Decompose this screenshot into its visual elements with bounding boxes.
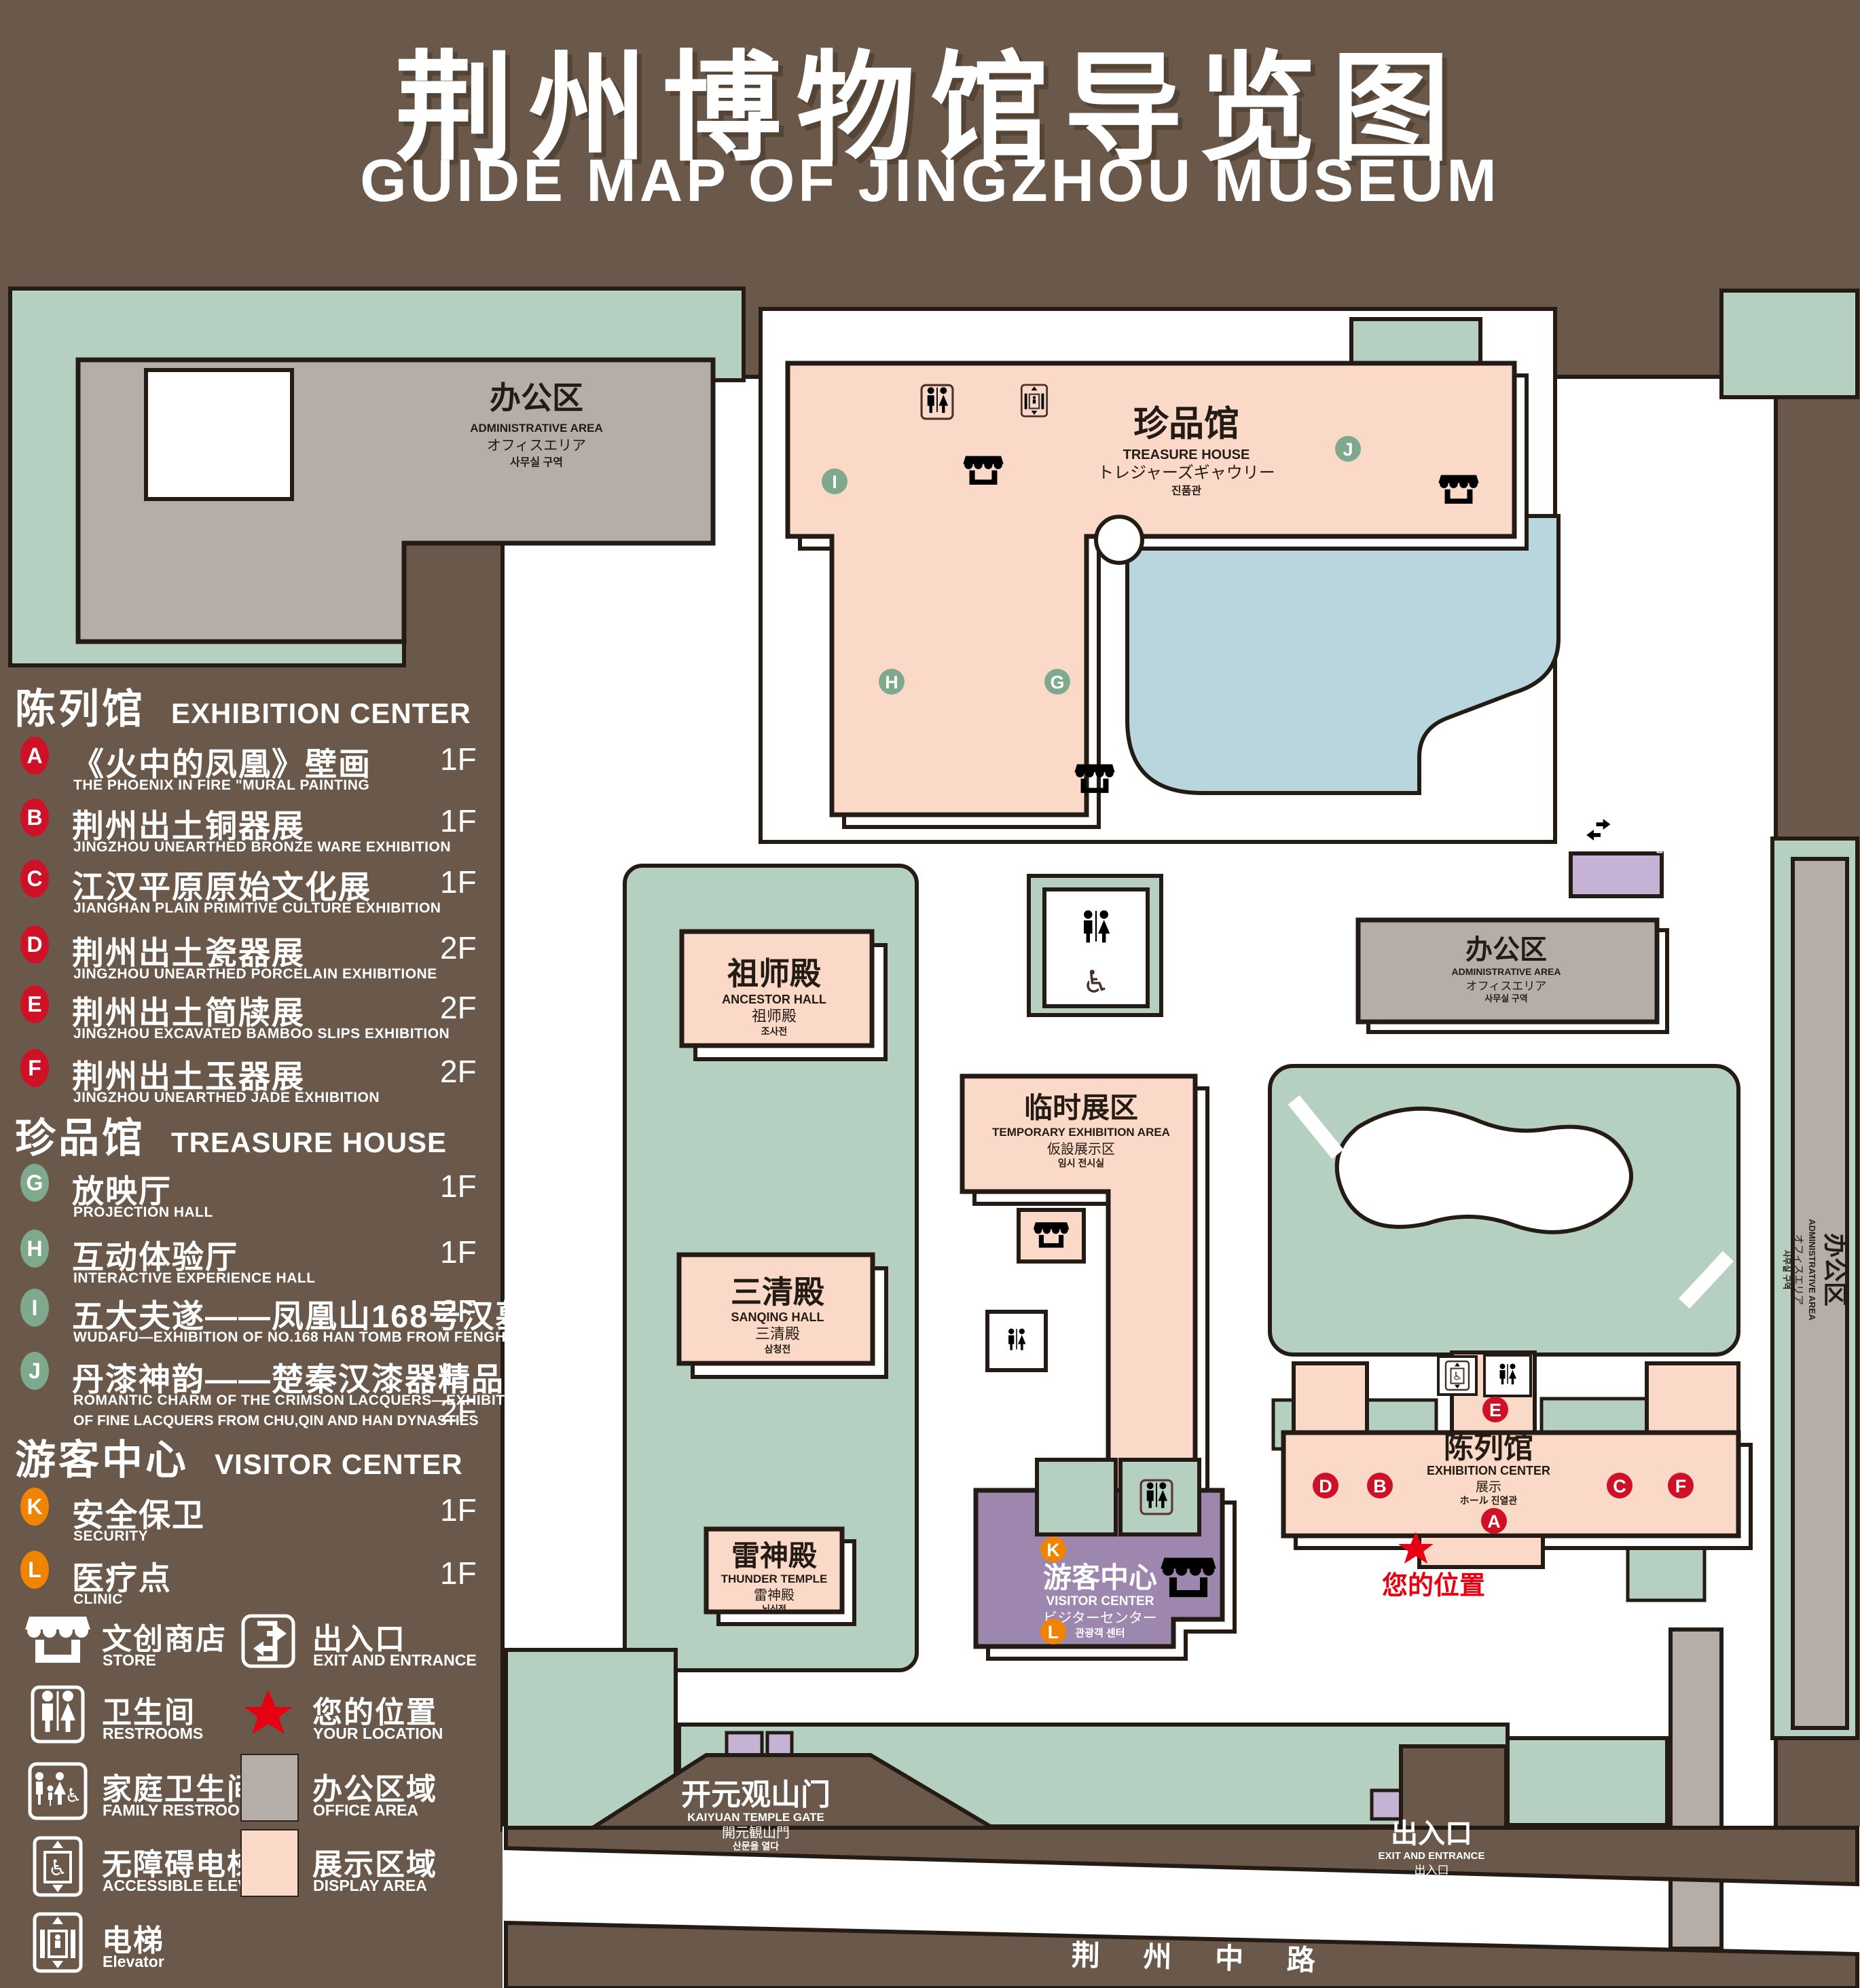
floor-label: 2F — [440, 1293, 477, 1329]
map-marker-G: G — [1044, 669, 1070, 695]
svg-text:祖师殿: 祖师殿 — [727, 956, 821, 991]
south-exit-area — [1401, 1746, 1506, 1830]
badge-G: G — [20, 1164, 49, 1202]
svg-text:出入口: 出入口 — [1649, 830, 1686, 843]
list-item-J: J丹漆神韵——楚秦汉漆器精品展ROMANTIC CHARM OF THE CRI… — [0, 1352, 503, 1414]
badge-K: K — [20, 1488, 49, 1526]
svg-text:珍品馆: 珍品馆 — [1133, 405, 1239, 444]
floor-label: 2F — [440, 1053, 477, 1090]
svg-text:办公区: 办公区 — [490, 380, 583, 416]
floor-label: 1F — [440, 1555, 477, 1591]
svg-text:K: K — [1046, 1540, 1060, 1560]
svg-text:雷神殿: 雷神殿 — [731, 1540, 817, 1572]
svg-text:办公区: 办公区 — [1465, 935, 1547, 965]
elevator-icon — [20, 1905, 95, 1980]
svg-text:ADMINISTRATIVE AREA: ADMINISTRATIVE AREA — [1807, 1219, 1817, 1321]
list-item-C: C江汉平原原始文化展JIANGHAN PLAIN PRIMITIVE CULTU… — [0, 860, 503, 922]
svg-text:E: E — [1489, 1400, 1501, 1420]
map-marker-E: E — [1482, 1397, 1508, 1422]
svg-text:EXIT AND ENTRANCE: EXIT AND ENTRANCE — [1379, 1850, 1485, 1862]
map-marker-K: K — [1040, 1536, 1066, 1562]
section-visitor-center: 游客中心VISITOR CENTER — [15, 1427, 463, 1475]
badge-E: E — [20, 985, 49, 1023]
svg-text:ANCESTOR HALL: ANCESTOR HALL — [722, 993, 826, 1006]
store-icon — [20, 1604, 95, 1678]
svg-text:관광객 센터: 관광객 센터 — [1075, 1627, 1125, 1639]
svg-text:출입구: 출입구 — [1656, 844, 1680, 854]
svg-text:산문을 열다: 산문을 열다 — [733, 1841, 779, 1852]
svg-text:B: B — [1373, 1476, 1387, 1496]
visitor-green-notch-1 — [1037, 1460, 1116, 1534]
svg-text:조사전: 조사전 — [761, 1026, 788, 1037]
map-marker-D: D — [1313, 1473, 1338, 1498]
svg-text:トレジャーズギャウリー: トレジャーズギャウリー — [1097, 464, 1275, 482]
badge-F: F — [20, 1049, 49, 1087]
svg-text:G: G — [1050, 672, 1064, 693]
svg-text:临时展区: 临时展区 — [1024, 1092, 1138, 1124]
badge-J: J — [20, 1352, 49, 1390]
svg-text:삼청전: 삼청전 — [765, 1344, 791, 1355]
floor-label: 1F — [440, 1492, 477, 1528]
page-subtitle: GUIDE MAP OF JINGZHOU MUSEUM — [0, 146, 1860, 215]
exhibition-stub — [1419, 1536, 1543, 1567]
list-item-I: I五大夫遂——凤凰山168号汉墓展WUDAFU—EXHIBITION OF NO… — [0, 1289, 503, 1351]
svg-text:办公区: 办公区 — [1821, 1233, 1849, 1306]
floor-label: 2F — [440, 929, 477, 966]
floor-label: 1F — [440, 741, 477, 777]
list-item-B: B荆州出土铜器展JINGZHOU UNEARTHED BRONZE WARE E… — [0, 798, 503, 861]
map-marker-L: L — [1040, 1619, 1066, 1644]
svg-text:祖师殿: 祖师殿 — [752, 1008, 797, 1025]
your-location-label: 您的位置 — [1382, 1572, 1485, 1600]
svg-text:游客中心: 游客中心 — [1043, 1562, 1157, 1594]
list-item-H: H互动体验厅INTERACTIVE EXPERIENCE HALL1F — [0, 1230, 503, 1292]
green-area-southeast — [1508, 1738, 1667, 1825]
svg-text:SANQING HALL: SANQING HALL — [731, 1310, 824, 1324]
road-label: 荆 州 中 路 — [1071, 1939, 1333, 1976]
floor-label: 1-2F — [440, 1356, 503, 1429]
svg-text:L: L — [1048, 1622, 1059, 1642]
svg-text:임시 전시실: 임시 전시실 — [1058, 1158, 1104, 1168]
svg-text:オフィスエリア: オフィスエリア — [1466, 980, 1547, 993]
svg-text:진품관: 진품관 — [1171, 485, 1201, 497]
svg-text:开元观山门: 开元观山门 — [681, 1778, 831, 1811]
badge-B: B — [20, 798, 49, 836]
badge-H: H — [20, 1230, 49, 1268]
map-marker-B: B — [1367, 1473, 1393, 1498]
svg-text:陈列馆: 陈列馆 — [1444, 1431, 1533, 1465]
svg-text:出入口: 出入口 — [1625, 785, 1711, 817]
svg-text:出入口: 出入口 — [1415, 1864, 1449, 1877]
svg-text:사무실 구역: 사무실 구역 — [1484, 993, 1527, 1004]
section-exhibition-center: 陈列馆EXHIBITION CENTER — [15, 676, 471, 724]
floor-label: 1F — [440, 1234, 477, 1270]
admin-inner-court — [146, 370, 292, 499]
svg-text:雷神殿: 雷神殿 — [754, 1587, 795, 1603]
map-marker-J: J — [1335, 436, 1361, 462]
svg-text:H: H — [885, 672, 898, 693]
gray-strip-southeast — [1671, 1630, 1721, 1949]
svg-text:EXIT AND ENTRANCE: EXIT AND ENTRANCE — [1611, 817, 1725, 828]
svg-text:A: A — [1487, 1511, 1501, 1532]
accessible-elevator-icon — [20, 1829, 95, 1904]
svg-text:THUNDER TEMPLE: THUNDER TEMPLE — [721, 1572, 828, 1585]
round-plaza — [1096, 517, 1142, 563]
svg-text:KAIYUAN TEMPLE GATE: KAIYUAN TEMPLE GATE — [687, 1811, 824, 1824]
accessible-restroom-icon: ♿ — [1082, 964, 1110, 999]
exit-icon — [231, 1604, 306, 1678]
svg-text:뇌신전: 뇌신전 — [762, 1604, 786, 1614]
gate-box-northeast — [1571, 853, 1662, 896]
svg-text:TEMPORARY EXHIBITION AREA: TEMPORARY EXHIBITION AREA — [992, 1126, 1170, 1139]
list-item-G: G放映厅PROJECTION HALL1F — [0, 1164, 503, 1226]
svg-text:三清殿: 三清殿 — [731, 1274, 824, 1310]
list-item-A: A《火中的凤凰》壁画THE PHOENIX IN FIRE "MURAL PAI… — [0, 737, 503, 799]
restrooms-icon — [20, 1677, 95, 1752]
badge-D: D — [20, 925, 49, 963]
section-treasure-house: 珍品馆TREASURE HOUSE — [15, 1105, 447, 1153]
floor-label: 1F — [440, 1168, 477, 1204]
svg-text:ADMINISTRATIVE AREA: ADMINISTRATIVE AREA — [470, 422, 603, 435]
svg-text:出入口: 出入口 — [1391, 1819, 1472, 1849]
green-area-northeast — [1721, 291, 1857, 397]
svg-text:사무실 구역: 사무실 구역 — [1782, 1250, 1792, 1290]
svg-text:J: J — [1343, 439, 1353, 460]
badge-A: A — [20, 737, 49, 775]
svg-text:ADMINISTRATIVE AREA: ADMINISTRATIVE AREA — [1452, 966, 1561, 977]
pond — [1337, 1109, 1631, 1232]
map-marker-C: C — [1607, 1473, 1633, 1498]
svg-text:ホール 진열관: ホール 진열관 — [1460, 1495, 1518, 1506]
badge-I: I — [20, 1289, 49, 1327]
map-marker-I: I — [822, 468, 847, 494]
list-item-E: E荆州出土简牍展JINGZHOU EXCAVATED BAMBOO SLIPS … — [0, 985, 503, 1048]
svg-text:TREASURE HOUSE: TREASURE HOUSE — [1123, 447, 1250, 462]
svg-text:I: I — [832, 472, 837, 492]
display-area-swatch — [240, 1829, 299, 1897]
svg-text:三清殿: 三清殿 — [755, 1325, 800, 1342]
office-area-swatch — [240, 1754, 299, 1822]
badge-L: L — [20, 1551, 49, 1589]
svg-text:仮設展示区: 仮設展示区 — [1047, 1141, 1115, 1157]
svg-text:VISITOR CENTER: VISITOR CENTER — [1046, 1594, 1154, 1608]
floor-label: 1F — [440, 864, 477, 900]
exhibition-wing-east — [1647, 1363, 1738, 1438]
list-item-F: F荆州出土玉器展JINGZHOU UNEARTHED JADE EXHIBITI… — [0, 1049, 503, 1111]
svg-text:オフィスエリア: オフィスエリア — [1793, 1234, 1804, 1306]
list-item-K: K安全保卫SECURITY1F — [0, 1488, 503, 1550]
svg-text:開元観山門: 開元観山門 — [722, 1825, 790, 1841]
map-marker-A: A — [1481, 1508, 1507, 1534]
family-restrooms-icon — [20, 1754, 95, 1828]
badge-C: C — [20, 860, 49, 898]
svg-text:F: F — [1675, 1476, 1687, 1496]
svg-text:C: C — [1613, 1476, 1626, 1496]
map-marker-F: F — [1668, 1473, 1694, 1498]
store-kiosk — [1019, 1210, 1084, 1262]
map-marker-H: H — [879, 669, 905, 695]
svg-text:オフィスエリア: オフィスエリア — [487, 438, 587, 454]
exhibition-wing-west — [1294, 1363, 1367, 1438]
svg-text:사무실 구역: 사무실 구역 — [510, 456, 563, 468]
floor-label: 1F — [440, 803, 477, 839]
floor-label: 2F — [440, 989, 477, 1026]
svg-text:D: D — [1319, 1476, 1332, 1496]
svg-text:展示: 展示 — [1476, 1480, 1501, 1494]
your-location-icon — [231, 1677, 306, 1752]
svg-text:EXHIBITION CENTER: EXHIBITION CENTER — [1427, 1464, 1550, 1477]
list-item-D: D荆州出土瓷器展JINGZHOU UNEARTHED PORCELAIN EXH… — [0, 925, 503, 988]
svg-text:출입구: 출입구 — [1419, 1877, 1444, 1887]
